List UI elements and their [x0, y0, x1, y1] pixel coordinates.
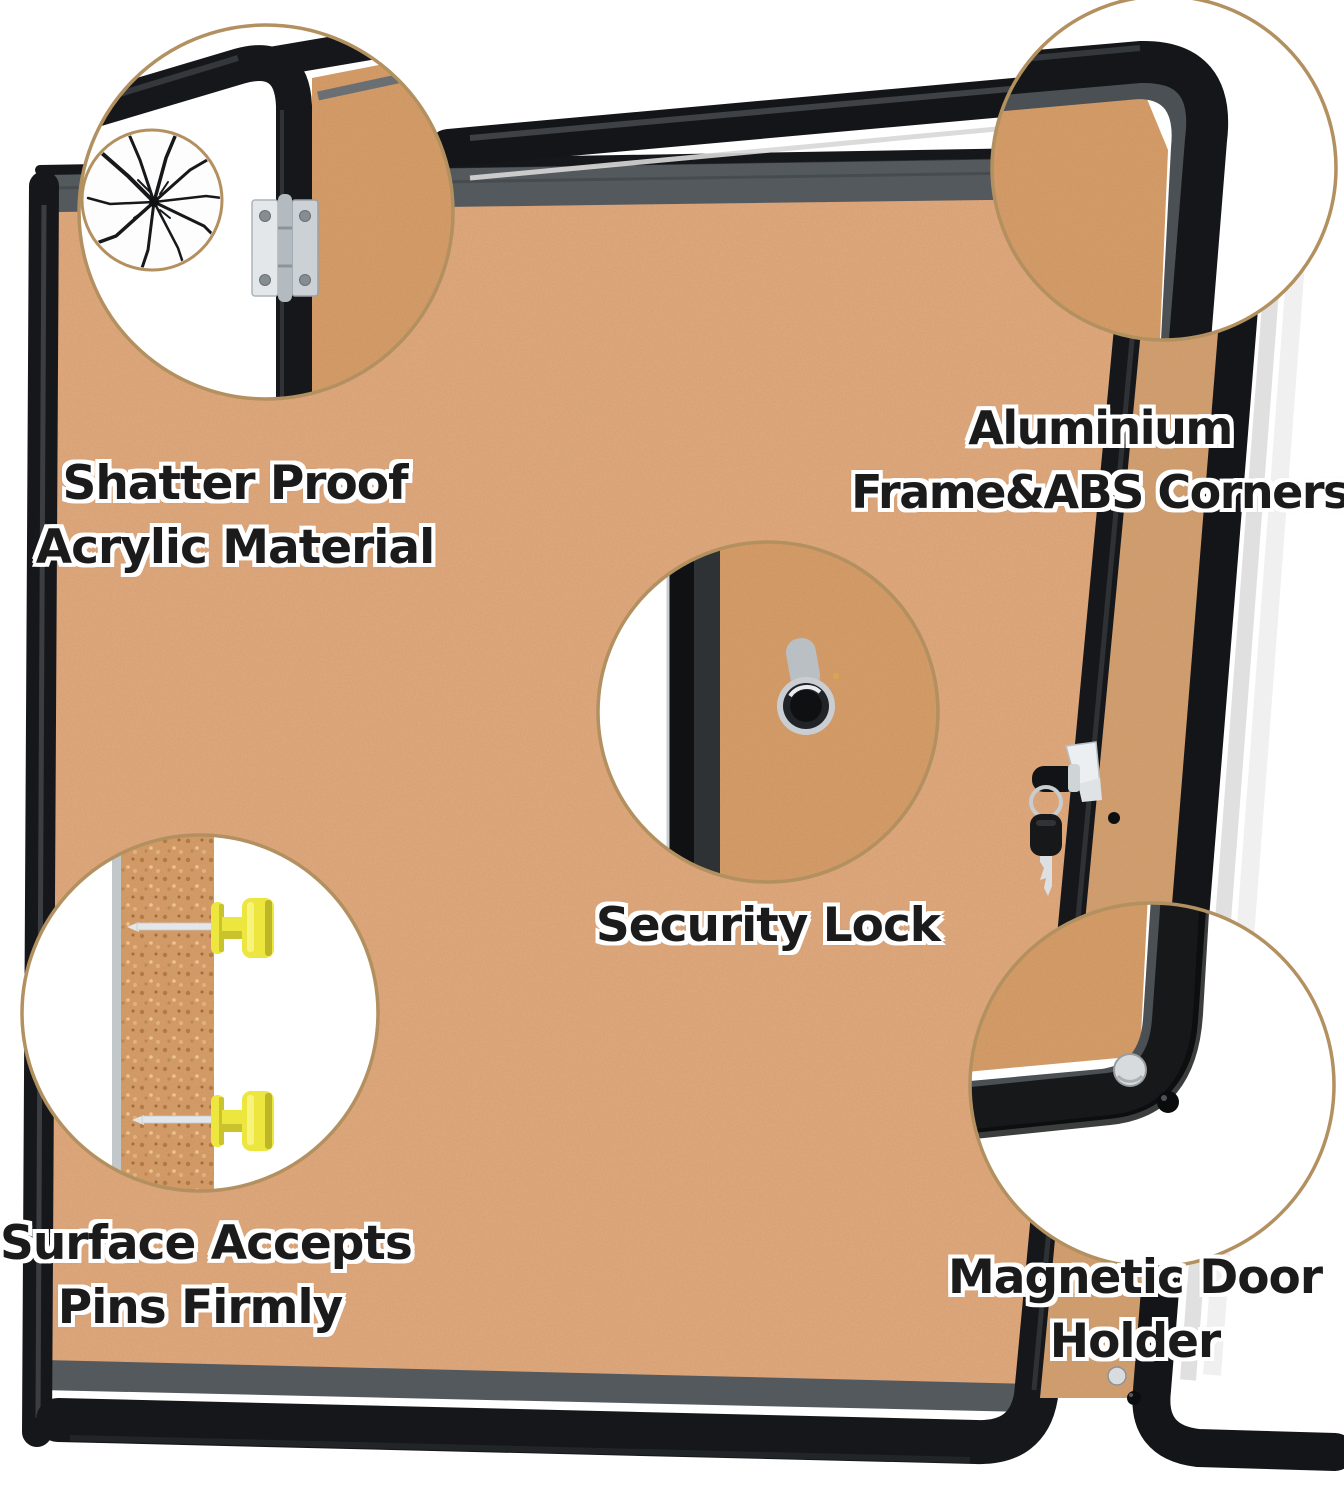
label-surface-pins: Surface Accepts Pins Firmly — [0, 1212, 400, 1340]
hinge-icon — [252, 194, 318, 302]
label-line: Surface Accepts — [0, 1212, 400, 1276]
label-shatter-proof: Shatter Proof Acrylic Material — [5, 452, 465, 580]
cracked-acrylic-icon — [82, 130, 222, 270]
label-magnetic-door: Magnetic Door Holder — [930, 1246, 1340, 1374]
cork-backing — [112, 835, 121, 1191]
label-line: Security Lock — [558, 894, 978, 958]
label-line: Acrylic Material — [5, 516, 465, 580]
label-aluminium-frame: Aluminium Frame&ABS Corners — [850, 396, 1344, 524]
latch-catch — [1108, 812, 1120, 824]
label-security-lock: Security Lock — [558, 894, 978, 958]
label-line: Aluminium — [850, 396, 1344, 460]
label-line: Holder — [930, 1310, 1340, 1374]
callout-circle-pins — [22, 835, 378, 1191]
label-line: Pins Firmly — [0, 1276, 400, 1340]
label-line: Magnetic Door — [930, 1246, 1340, 1310]
label-line: Shatter Proof — [5, 452, 465, 516]
label-line: Frame&ABS Corners — [850, 460, 1344, 524]
door-magnet-screw — [1127, 1391, 1141, 1405]
